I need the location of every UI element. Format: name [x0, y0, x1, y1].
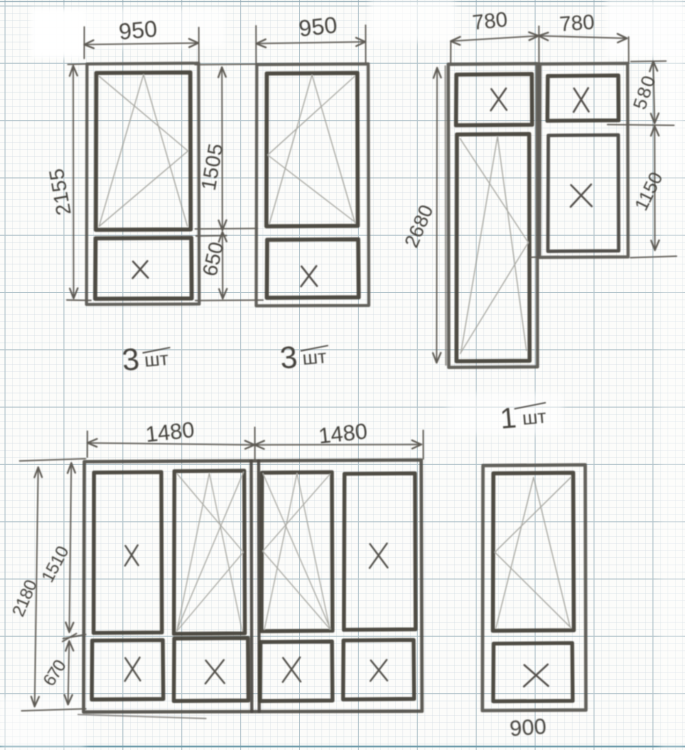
- svg-text:1480: 1480: [317, 419, 368, 449]
- svg-text:1480: 1480: [144, 417, 195, 447]
- svg-text:950: 950: [118, 15, 158, 44]
- svg-text:950: 950: [297, 12, 338, 42]
- svg-text:900: 900: [509, 714, 547, 742]
- svg-text:780: 780: [471, 8, 508, 35]
- svg-text:780: 780: [559, 11, 596, 36]
